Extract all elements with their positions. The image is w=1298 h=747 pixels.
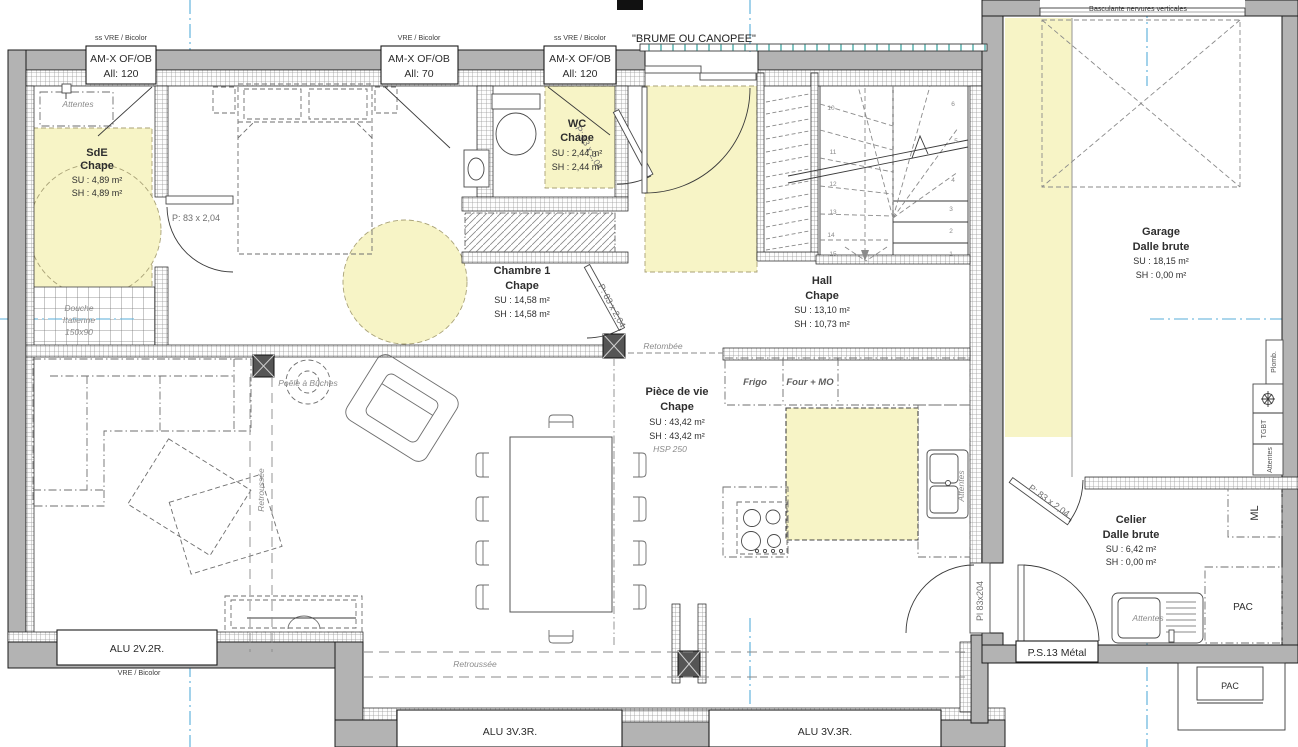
door-size-label: Pl 83x204: [975, 581, 985, 621]
chambre-door: P: 83 x 2,04: [584, 265, 627, 338]
room-su: SU : 13,10 m²: [794, 305, 850, 315]
window-sde: ss VRE / Bicolor AM-X OF/OB All: 120: [86, 33, 156, 84]
window-swing-line: [385, 87, 450, 148]
window-chambre: VRE / Bicolor AM-X OF/OB All: 70: [381, 33, 458, 84]
room-su: SU : 14,58 m²: [494, 295, 550, 305]
stair-hatch-strip: [757, 73, 818, 261]
washing-machine-box: ML: [1228, 489, 1282, 537]
tgbt-box: TGBT: [1261, 419, 1268, 438]
floor-plan: 1 2 3 4 5 6 10 11 12 13 14 15 Attentes: [0, 0, 1298, 747]
sde-door: P: 83 x 2,04: [166, 196, 233, 272]
step-number: 14: [827, 232, 835, 239]
cooktop: [737, 502, 787, 554]
chambre-turning-circle: [343, 220, 467, 344]
sde-attentes-box: Attentes: [40, 84, 113, 126]
window-tag: ss VRE / Bicolor: [554, 33, 607, 42]
window-label: ALU 3V.3R.: [798, 726, 852, 738]
room-floor: Dalle brute: [1103, 529, 1160, 541]
attentes-label: Attentes: [1267, 447, 1274, 473]
garage-door-label: Basculante nervures verticales: [1089, 4, 1187, 13]
window-label: ALU 2V.2R.: [110, 643, 164, 655]
toilet: [492, 94, 540, 155]
plan-marker: [617, 0, 643, 10]
oven-label: Four + MO: [786, 377, 834, 388]
step-number: 15: [829, 251, 837, 258]
room-label-celier: Celier Dalle brute SU : 6,42 m² SH : 0,0…: [1103, 514, 1160, 567]
stove-label: Poêle à Bûches: [278, 378, 338, 388]
window-label: All: 120: [103, 68, 138, 80]
door-size-label: P: 83 x 2,04: [596, 282, 627, 329]
bay-sliding-panels: [645, 66, 756, 80]
room-name: Hall: [812, 275, 832, 287]
window-tag: VRE / Bicolor: [398, 33, 441, 42]
room-su: SU : 2,44 m²: [552, 148, 603, 158]
window-tag: VRE / Bicolor: [118, 668, 161, 677]
window-south-left: ALU 3V.3R.: [397, 710, 622, 747]
sofa: [33, 359, 251, 506]
attentes-label: Attentes: [61, 99, 94, 109]
celier-door: P: 83 x 2,04: [1009, 478, 1083, 525]
room-su: SU : 43,42 m²: [649, 417, 705, 427]
room-floor: Chape: [560, 132, 594, 144]
entry-floor-zone: [645, 86, 757, 272]
room-sh: SH : 0,00 m²: [1106, 557, 1157, 567]
plomb-box: Plomb.: [1266, 340, 1283, 384]
room-label-chambre1: Chambre 1 Chape SU : 14,58 m² SH : 14,58…: [494, 265, 551, 319]
entry-canopy: [640, 44, 987, 51]
attentes-label: Attentes: [1131, 613, 1164, 623]
room-name: Pièce de vie: [646, 386, 709, 398]
room-sh: SH : 10,73 m²: [794, 319, 850, 329]
room-hsp: HSP 250: [653, 444, 687, 454]
service-door: [1018, 565, 1099, 643]
window-salon: ALU 2V.2R. VRE / Bicolor: [57, 630, 217, 677]
room-name: Chambre 1: [494, 265, 551, 277]
kitchen: Attentes Frigo Four + MO: [723, 358, 970, 557]
room-sh: SH : 14,58 m²: [494, 309, 550, 319]
post: [603, 334, 625, 358]
door-size-label: P: 83 x 2,04: [1027, 483, 1072, 519]
room-name: Garage: [1142, 226, 1180, 238]
armchair: [342, 351, 462, 465]
service-door-label-box: P.S.13 Métal: [1016, 641, 1098, 662]
nightstand: [213, 87, 235, 113]
room-su: SU : 4,89 m²: [72, 175, 123, 185]
door-size-label: P: 83 x 2,04: [172, 213, 220, 223]
room-name: SdE: [86, 147, 107, 159]
window-label: All: 70: [404, 68, 433, 80]
window-wc: ss VRE / Bicolor AM-X OF/OB All: 120: [544, 33, 616, 84]
post: [678, 651, 700, 677]
pac-label: PAC: [1233, 602, 1253, 613]
room-label-garage: Garage Dalle brute SU : 18,15 m² SH : 0,…: [1133, 226, 1190, 280]
bay-label: "BRUME OU CANOPEE": [632, 33, 756, 45]
kitchen-island: [786, 408, 918, 540]
window-label: AM-X OF/OB: [388, 53, 450, 65]
room-su: SU : 6,42 m²: [1106, 544, 1157, 554]
room-sh: SH : 2,44 m²: [552, 162, 603, 172]
step-number: 4: [951, 177, 955, 184]
window-label: ALU 3V.3R.: [483, 726, 537, 738]
shower-label: Italienne: [63, 315, 95, 325]
bed: [213, 84, 397, 254]
plomb-label: Plomb.: [1271, 351, 1278, 373]
room-name: WC: [568, 118, 586, 130]
step-number: 1: [949, 251, 953, 258]
window-label: AM-X OF/OB: [549, 53, 611, 65]
console-cabinet: [225, 596, 362, 632]
door-label: P.S.13 Métal: [1028, 647, 1087, 659]
room-floor: Chape: [505, 280, 539, 292]
shower-label: 150x90: [65, 327, 93, 337]
room-label-hall: Hall Chape SU : 13,10 m² SH : 10,73 m²: [794, 275, 850, 329]
room-sh: SH : 4,89 m²: [72, 188, 123, 198]
room-floor: Chape: [80, 160, 114, 172]
step-number: 6: [951, 101, 955, 108]
heat-pump-zone: PAC: [1205, 567, 1282, 643]
slab-edge-label: Retroussée: [256, 468, 266, 512]
slab-edge-label: Retroussée: [453, 659, 497, 669]
window-south-right: ALU 3V.3R.: [709, 710, 941, 747]
room-floor: Chape: [660, 401, 694, 413]
room-su: SU : 18,15 m²: [1133, 256, 1189, 266]
step-number: 10: [827, 105, 835, 112]
exterior-heat-pump: PAC: [1178, 663, 1285, 730]
tgbt-label: TGBT: [1261, 419, 1268, 438]
beam-label: Retombée: [643, 341, 682, 351]
kitchen-sink: Attentes: [927, 450, 968, 518]
garage-celier-equipment: Plomb. TGBT Attentes ML PAC Attentes PAC: [1042, 18, 1285, 730]
room-sh: SH : 0,00 m²: [1136, 270, 1187, 280]
pac-label: PAC: [1221, 681, 1239, 691]
closet: [465, 213, 615, 252]
window-label: All: 120: [562, 68, 597, 80]
celier-sink: Attentes: [1112, 593, 1203, 643]
dining-table: [510, 437, 612, 612]
attentes-label: Attentes: [956, 470, 966, 503]
coffee-table: [128, 439, 251, 556]
fridge-label: Frigo: [743, 377, 767, 388]
post: [253, 355, 274, 377]
garage-access-door: Pl 83x204: [906, 563, 990, 633]
window-label: AM-X OF/OB: [90, 53, 152, 65]
step-number: 3: [949, 206, 953, 213]
room-sh: SH : 43,42 m²: [649, 431, 705, 441]
nightstand: [375, 87, 397, 113]
step-number: 2: [949, 228, 953, 235]
room-floor: Chape: [805, 290, 839, 302]
garage-strip-zone: [1005, 18, 1072, 437]
step-number: 13: [829, 209, 837, 216]
room-floor: Dalle brute: [1133, 241, 1190, 253]
step-number: 11: [830, 149, 837, 156]
hand-basin: [464, 150, 489, 187]
window-tag: ss VRE / Bicolor: [95, 33, 148, 42]
room-name: Celier: [1116, 514, 1147, 526]
step-number: 12: [829, 181, 837, 188]
ml-label: ML: [1249, 505, 1261, 520]
step-number: 5: [954, 138, 958, 145]
room-label-piece-de-vie: Pièce de vie Chape SU : 43,42 m² SH : 43…: [646, 386, 709, 454]
shower-label: Douche: [64, 303, 94, 313]
